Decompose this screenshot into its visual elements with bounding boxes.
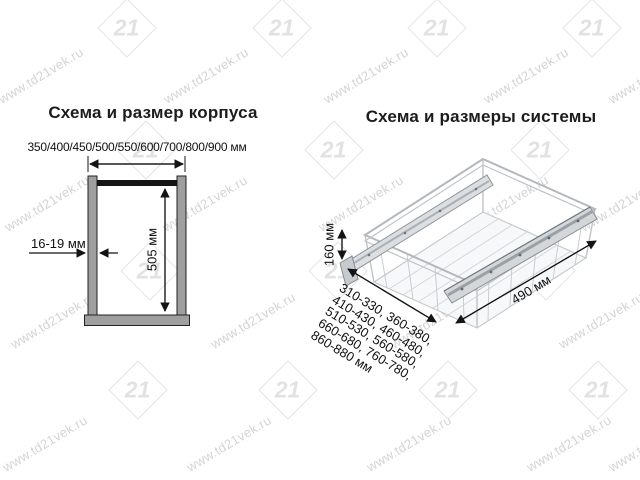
watermark-url-text: www.td21vek.ru <box>184 412 274 474</box>
watermark-logo-text: 21 <box>125 379 151 402</box>
catalog-diagram-page: www.td21vek.ruwww.td21vek.ruwww.td21vek.… <box>0 0 640 480</box>
watermark-21vek-logo: 21 <box>97 0 156 58</box>
watermark-url-text: www.td21vek.ru <box>0 44 86 106</box>
cabinet-right-panel <box>177 176 186 315</box>
watermark-logo-text: 21 <box>579 17 605 40</box>
watermark-url-text: www.td21vek.ru <box>524 412 614 474</box>
watermark-logo-text: 21 <box>114 17 140 40</box>
cabinet-top-rail <box>97 180 177 186</box>
watermark-21vek-logo: 21 <box>252 0 311 58</box>
watermark-21vek-logo: 21 <box>407 0 466 58</box>
cabinet-left-panel <box>88 176 97 315</box>
watermark-21vek-logo: 21 <box>562 0 621 58</box>
cabinet-bottom-panel <box>85 315 190 326</box>
cabinet-height-label: 505 мм <box>145 218 160 282</box>
panel-thickness-label: 16-19 мм <box>31 236 86 251</box>
watermark-url-text: www.td21vek.ru <box>321 44 411 106</box>
watermark-21vek-logo: 21 <box>258 360 317 419</box>
watermark-logo-text: 21 <box>269 17 295 40</box>
watermark-url-text: www.td21vek.ru <box>481 44 571 106</box>
watermark-logo-text: 21 <box>275 379 301 402</box>
watermark-url-text: www.td21vek.ru <box>161 44 251 106</box>
watermark-logo-text: 21 <box>585 379 611 402</box>
system-height-label: 160 мм <box>322 215 337 275</box>
watermark-21vek-logo: 21 <box>108 360 167 419</box>
watermark-url-text: www.td21vek.ru <box>606 44 640 106</box>
watermark-url-text: www.td21vek.ru <box>364 412 454 474</box>
watermark-logo-text: 21 <box>424 17 450 40</box>
watermark-logo-text: 21 <box>435 379 461 402</box>
watermark-url-text: www.td21vek.ru <box>606 412 640 474</box>
watermark-url-text: www.td21vek.ru <box>0 412 90 474</box>
left-panel-title: Схема и размер корпуса <box>20 103 286 123</box>
cabinet-width-options-label: 350/400/450/500/550/600/700/800/900 мм <box>18 140 256 154</box>
right-panel-title: Схема и размеры системы <box>348 107 614 127</box>
